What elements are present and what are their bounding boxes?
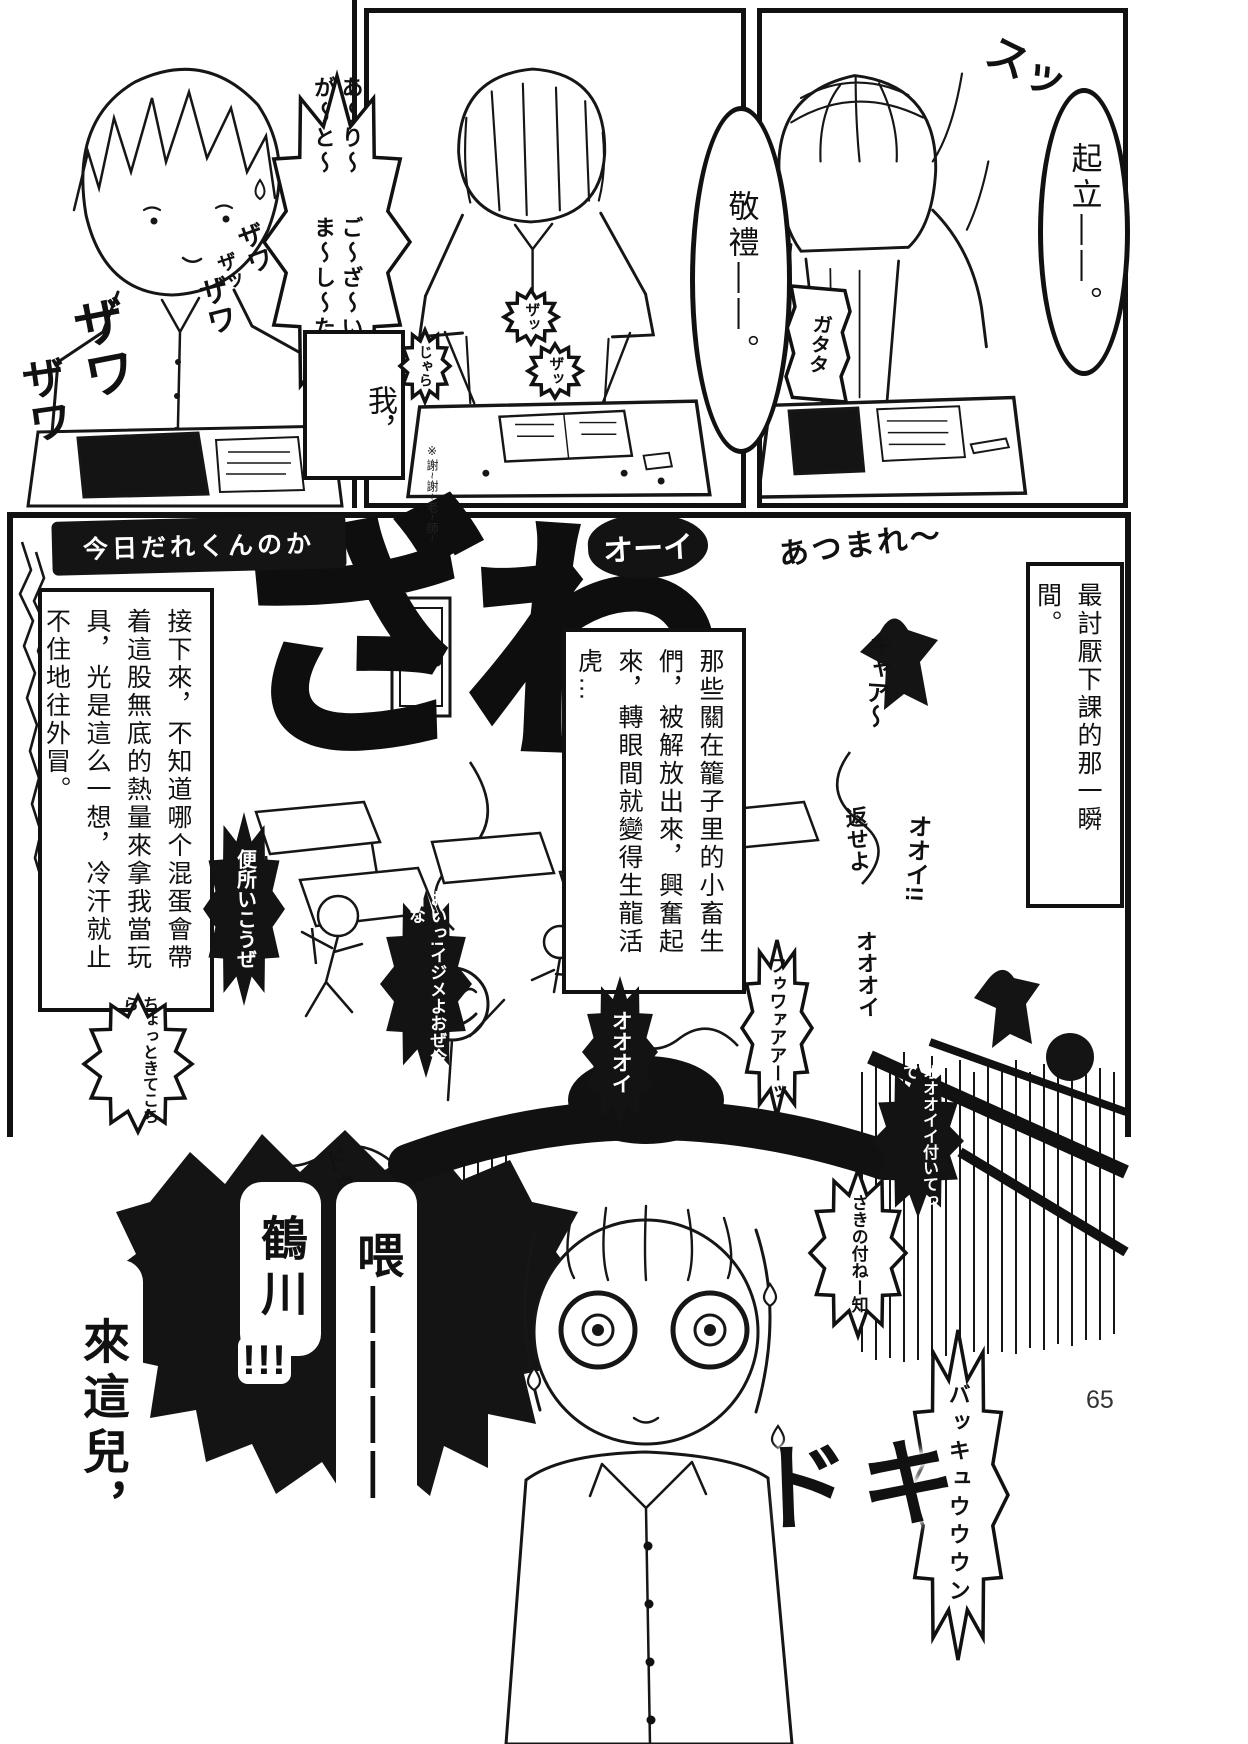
speech-bubble-keirei: 敬禮——。 (690, 106, 792, 454)
call-hey: 喂———— (336, 1182, 417, 1554)
shout-bubble-fuwaa: フゥワァアアーッ (742, 940, 812, 1116)
translator-note: ※謝~謝~老~師~ (424, 444, 441, 574)
ooi-outline-text: オーイ (602, 522, 694, 571)
sfx-bubble-zatsu-2: ザッ (528, 344, 582, 398)
sfx-oooi-small: オオオイ (848, 929, 883, 1018)
chotto-text: ちょっときてこちら (84, 996, 192, 1132)
narration-box-left: 接下來，不知道哪个混蛋會帶着這股無底的熱量來拿我當玩具，光是這么一想，冷汗就止不… (38, 588, 214, 1012)
chalk-text: 今日だれくんのか (83, 524, 316, 566)
shout-blob-benjo: 便所いこうぜ (203, 812, 285, 1006)
wa-box-bubble: 我， (303, 330, 405, 480)
kiritsu-text: 起立——。 (1062, 142, 1107, 322)
wa-text: 我， (357, 385, 401, 445)
sfx-bubble-zatsu-1: ザッ (504, 290, 558, 344)
manga-page: ザワ ザワ ザワ ザワ ザッ あ〜り〜が〜と〜ご〜ざ〜い〜ま〜し〜た 我， ※謝… (0, 0, 1248, 1744)
sfx-doki: ドキ (752, 1404, 969, 1550)
narration-box-middle: 那些關在籠子里的小畜生們，被解放出來，興奮起來，轉眼間就變得生龍活虎… (562, 628, 746, 994)
sfx-zatsu-1: ザッ (504, 290, 558, 344)
thanks-line-1: あ〜り〜が〜と〜 (310, 76, 365, 216)
call-tsurukawa: 鶴川 (240, 1182, 321, 1356)
keirei-text: 敬禮——。 (719, 190, 764, 370)
shout-blob-ijime: おいっ!イジメよおぜ今日な (380, 890, 472, 1078)
sfx-kaeseyo: 返せよ (838, 805, 875, 873)
ijime-text: おいっ!イジメよおぜ今日な (380, 890, 472, 1078)
sfx-bubble-gatata: ガタタ (786, 286, 850, 402)
chalkboard-scribble: 今日だれくんのか (51, 514, 346, 576)
panel-2 (364, 8, 746, 508)
sfx-kyaa: キャア〜 (855, 631, 897, 729)
fuwaa-text: フゥワァアアーッ (742, 940, 812, 1116)
benjo-text: 便所いこうぜ (203, 812, 285, 1006)
narration-box-right: 最討厭下課的那一瞬間。 (1026, 562, 1124, 908)
sfx-zawa-4: ザワ (4, 352, 80, 448)
call-bang: !!! (238, 1336, 291, 1384)
shout-blob-oooi: オオオイ (582, 976, 658, 1128)
panel-2-artwork (369, 13, 741, 503)
call-come-here: 來這兒， (62, 1260, 143, 1594)
sfx-bubble-jara: じゃら (400, 330, 450, 402)
sfx-zatsu-2: ザッ (528, 344, 582, 398)
shout-bubble-sakino: さきの付ねー知 (810, 1170, 906, 1336)
page-number: 65 (1086, 1386, 1114, 1415)
shout-bubble-chotto: ちょっときてこちら (84, 996, 192, 1132)
oooi-blob-text: オオオイ (582, 976, 658, 1128)
sfx-jara: じゃら (400, 330, 450, 402)
speech-bubble-kiritsu: 起立——。 (1038, 88, 1130, 376)
sfx-gatata: ガタタ (781, 283, 855, 404)
sfx-ooi-bang: オオイ!! (896, 813, 936, 903)
sakino-text: さきの付ねー知 (810, 1170, 906, 1336)
